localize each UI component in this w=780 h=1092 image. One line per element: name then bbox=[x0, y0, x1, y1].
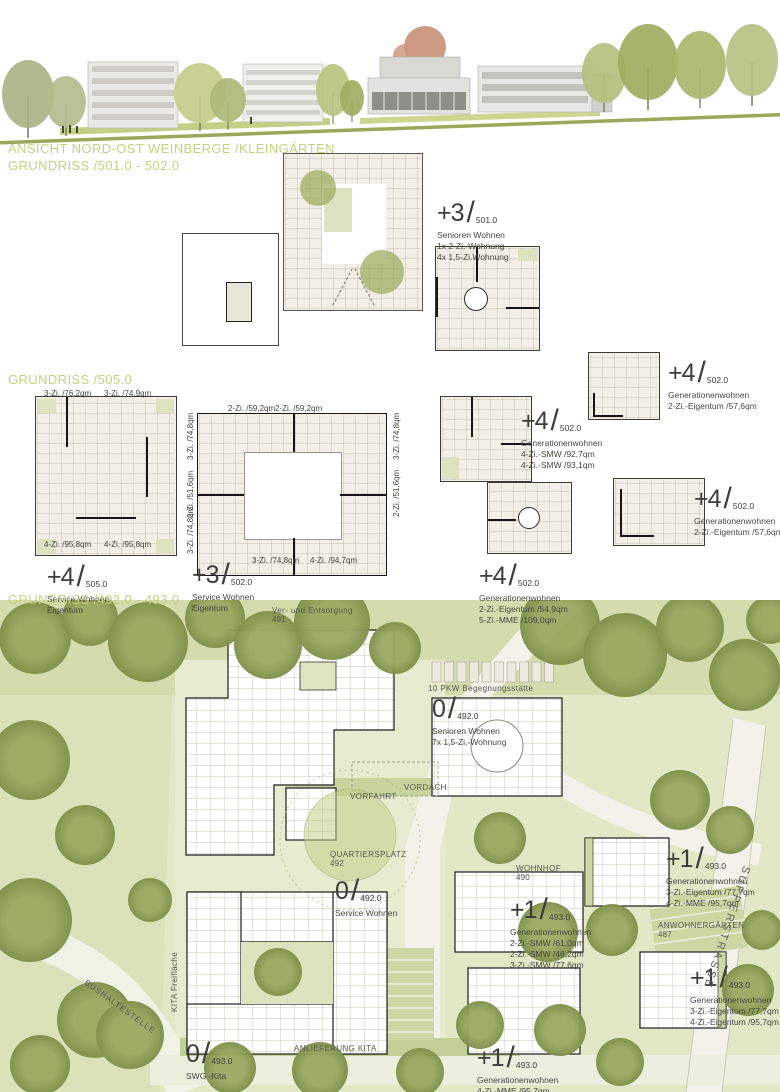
plan-label-lines: Generationenwohnen4-Zi.-SMW /92,7qm4-Zi.… bbox=[521, 438, 602, 471]
plan-label-line: Generationenwohnen bbox=[694, 516, 780, 527]
plan-label-line: 3-Zi.-Eigentum /77,7qm bbox=[690, 1006, 779, 1017]
plan-label-line: 5-Zi.-MME /109,0qm bbox=[479, 615, 568, 626]
plan-label-line: 4-Zi.-Eigentum /95,7qm bbox=[690, 1017, 779, 1028]
unit-label: 3-Zi. /74,8qm bbox=[392, 413, 401, 460]
plan-label-line: 2-Zi.-Eigentum /54,9qm bbox=[479, 604, 568, 615]
ref: 502.0 bbox=[518, 579, 539, 590]
ref: 501.0 bbox=[476, 216, 497, 227]
slash: / bbox=[720, 963, 728, 993]
wall bbox=[76, 517, 136, 519]
unit-label: 2-Zi. /59,2qm bbox=[275, 404, 322, 413]
plan-label-line: 2-Zi.-SMW /46,2qm bbox=[510, 949, 591, 960]
level: +3 bbox=[437, 201, 464, 226]
balcony-accent bbox=[518, 249, 538, 261]
plan-label-line: 4-Zi.-SMW /92,7qm bbox=[521, 449, 602, 460]
plan-label-lines: SWG -Kita bbox=[186, 1071, 233, 1082]
plan-label-line: SWG -Kita bbox=[186, 1071, 233, 1082]
plan-label-head: +1/493.0 bbox=[510, 893, 591, 923]
plan-label-head: +3/501.0 bbox=[437, 196, 509, 226]
ref: 502.0 bbox=[560, 424, 581, 435]
floor-plan-502-right-lower bbox=[487, 482, 572, 554]
plan-label-505: +4/505.0 Service WohnenEigentum bbox=[47, 560, 109, 616]
plan-label-502-main: +3/502.0 Service WohnenEigentum bbox=[192, 558, 254, 614]
level: +1 bbox=[666, 847, 693, 872]
plan-label-line: 4x 1,5-Zi.Wohnung bbox=[437, 252, 509, 263]
plan-room-texture bbox=[37, 398, 175, 554]
slash: / bbox=[448, 694, 456, 724]
courtyard-tree bbox=[360, 250, 404, 294]
slash: / bbox=[467, 198, 475, 228]
plan-label-lines: Generationenwohnen2-Zi.-Eigentum /57,6qm bbox=[668, 390, 757, 412]
site-label-number: 490 bbox=[516, 873, 561, 882]
level: 0 bbox=[186, 1042, 199, 1067]
plan-label-493-mid: +1/493.0 Generationenwohnen2-Zi.-SMW /61… bbox=[510, 893, 591, 971]
plan-label-line: 1x 2-Zi.-Wohnung bbox=[437, 241, 509, 252]
floor-plan-502-main bbox=[197, 413, 387, 576]
elevation-building-b bbox=[243, 64, 323, 122]
plan-label-line: Senioren Wohnen bbox=[437, 230, 509, 241]
wall bbox=[620, 535, 654, 537]
level: +4 bbox=[668, 361, 695, 386]
elevation-drawing bbox=[0, 0, 780, 150]
wall bbox=[506, 307, 539, 309]
ref: 493.0 bbox=[729, 981, 750, 992]
level: 0 bbox=[335, 879, 348, 904]
plan-label-line: Eigentum bbox=[192, 603, 254, 614]
unit-label: 3-Zi. /74,9qm bbox=[104, 389, 151, 398]
balcony-accent bbox=[38, 399, 56, 413]
slash: / bbox=[540, 895, 548, 925]
floor-plan-502-right-upper bbox=[440, 396, 532, 482]
plan-label-line: 3-Zi.-SMW /77,6qm bbox=[510, 960, 591, 971]
plan-label-line: Generationenwohnen bbox=[477, 1075, 558, 1086]
plan-label-lines: Service Wohnen bbox=[335, 908, 397, 919]
site-label-vordach: VORDACH bbox=[404, 783, 447, 792]
wall bbox=[471, 397, 473, 437]
site-label-text: Ver- und Entsorgung bbox=[272, 606, 353, 615]
level: +4 bbox=[694, 487, 721, 512]
plan-label-head: 0/493.0 bbox=[186, 1037, 233, 1067]
wall bbox=[146, 437, 148, 497]
plan-label-lines: Senioren Wohnen7x 1,5-Zi.-Wohnung bbox=[432, 726, 507, 748]
plan-label-line: 2-Zi.-Eigentum /57,6qm bbox=[694, 527, 780, 538]
plan-label-head: 0/492.0 bbox=[432, 692, 507, 722]
plan-label-head: +1/493.0 bbox=[477, 1041, 558, 1071]
slash: / bbox=[351, 876, 359, 906]
ref: 492.0 bbox=[360, 894, 381, 905]
balcony-accent bbox=[156, 399, 174, 413]
site-label-number: 492 bbox=[330, 859, 406, 868]
ref: 502.0 bbox=[707, 376, 728, 387]
slash: / bbox=[202, 1039, 210, 1069]
plan-label-line: 2-Zi.-Eigentum /57,6qm bbox=[668, 401, 757, 412]
slash: / bbox=[509, 561, 517, 591]
plan-label-502-mid: +4/502.0 Generationenwohnen4-Zi.-SMW /92… bbox=[521, 404, 602, 471]
ref: 493.0 bbox=[549, 913, 570, 924]
site-label-text: QUARTIERSPLATZ bbox=[330, 850, 406, 859]
slash: / bbox=[698, 358, 706, 388]
wall bbox=[198, 494, 244, 496]
plan-label-line: Generationenwohnen bbox=[521, 438, 602, 449]
unit-label: 3-Zi. /74,8qm bbox=[186, 413, 195, 460]
plan-label-lines: Generationenwohnen2-Zi.-Eigentum /57,6qm bbox=[694, 516, 780, 538]
slash: / bbox=[724, 484, 732, 514]
wall bbox=[340, 494, 386, 496]
slash: / bbox=[77, 562, 85, 592]
plan-label-line: Generationenwohnen bbox=[690, 995, 779, 1006]
plan-label-head: +4/502.0 bbox=[479, 559, 568, 589]
building-generationen-east-upper bbox=[585, 838, 669, 906]
courtyard-tree bbox=[254, 948, 302, 996]
unit-label: 3-Zi. /74,8qm bbox=[252, 556, 299, 565]
ref: 502.0 bbox=[231, 578, 252, 589]
balcony-accent bbox=[443, 457, 459, 479]
plan-label-line: Senioren Wohnen bbox=[432, 726, 507, 737]
plan-label-492-service: 0/492.0 Service Wohnen bbox=[335, 874, 397, 919]
ref: 505.0 bbox=[86, 580, 107, 591]
plan-label-493-kita: 0/493.0 SWG -Kita bbox=[186, 1037, 233, 1082]
unit-label: 4-Zi. /95,8qm bbox=[44, 540, 91, 549]
unit-label: 2-Zi. /59,2qm bbox=[228, 404, 275, 413]
unit-label: 4-Zi. /94,7qm bbox=[310, 556, 357, 565]
floor-plan-courtyard-501 bbox=[283, 153, 423, 311]
ref: 493.0 bbox=[705, 862, 726, 873]
elevation-building-a bbox=[88, 62, 178, 128]
unit-label: 2-Zi. /51,6qm bbox=[392, 470, 401, 517]
plan-label-head: +4/505.0 bbox=[47, 560, 109, 590]
ref: 493.0 bbox=[516, 1061, 537, 1072]
unit-label: 3-Zi. /74,8qm bbox=[186, 507, 195, 554]
stair-circle bbox=[518, 507, 540, 529]
floor-plan-502-far-right bbox=[613, 478, 705, 546]
plan-label-head: 0/492.0 bbox=[335, 874, 397, 904]
level: 0 bbox=[432, 697, 445, 722]
plan-label-head: +4/502.0 bbox=[521, 404, 602, 434]
plan-label-line: 4-Zi.-MME /95,7qm bbox=[477, 1086, 558, 1092]
wall bbox=[488, 519, 516, 521]
level: +4 bbox=[479, 564, 506, 589]
site-label-text: WOHNHOF bbox=[516, 864, 561, 873]
plan-label-501: +3/501.0 Senioren Wohnen1x 2-Zi.-Wohnung… bbox=[437, 196, 509, 263]
plan-label-lines: Generationenwohnen2-Zi.-SMW /61,0qm2-Zi.… bbox=[510, 927, 591, 971]
balcony-accent bbox=[156, 539, 174, 553]
courtyard-tree bbox=[300, 170, 336, 206]
title-grundriss-501-502: GRUNDRISS /501.0 - 502.0 bbox=[8, 158, 179, 173]
plan-label-line: 2-Zi.-SMW /61,0qm bbox=[510, 938, 591, 949]
plan-label-line: 4-Zi.-SMW /93,1qm bbox=[521, 460, 602, 471]
title-grundriss-492-493: GRUNDRISS /492.0 - 493.0 bbox=[8, 592, 179, 607]
site-label-number: 491 bbox=[272, 615, 353, 624]
slash: / bbox=[696, 844, 704, 874]
floor-plan-hall bbox=[182, 233, 279, 346]
plan-label-line: Generationenwohnen bbox=[510, 927, 591, 938]
site-label-pkw: 10 PKW Begegnungsstätte bbox=[428, 684, 533, 693]
floor-plan-505 bbox=[35, 396, 177, 556]
plan-label-head: +3/502.0 bbox=[192, 558, 254, 588]
slash: / bbox=[551, 406, 559, 436]
plan-label-492-senioren: 0/492.0 Senioren Wohnen7x 1,5-Zi.-Wohnun… bbox=[432, 692, 507, 748]
ref: 502.0 bbox=[733, 502, 754, 513]
slash: / bbox=[222, 560, 230, 590]
hall-core bbox=[226, 282, 252, 322]
wall bbox=[620, 489, 622, 537]
level: +4 bbox=[47, 565, 74, 590]
plan-label-line: Generationenwohnen bbox=[668, 390, 757, 401]
plan-label-line: Service Wohnen bbox=[335, 908, 397, 919]
plan-label-lines: Service WohnenEigentum bbox=[192, 592, 254, 614]
site-label-vorfahrt: VORFAHRT bbox=[350, 792, 397, 801]
unit-label: 4-Zi. /95,8qm bbox=[104, 540, 151, 549]
slash: / bbox=[507, 1043, 515, 1073]
level: +1 bbox=[477, 1046, 504, 1071]
elevation-building-c bbox=[368, 57, 470, 114]
inner-courtyard bbox=[244, 452, 342, 540]
stair-circle bbox=[464, 287, 488, 311]
plan-label-502-bottom: +4/502.0 Generationenwohnen2-Zi.-Eigentu… bbox=[479, 559, 568, 626]
plan-label-493-bottom: +1/493.0 Generationenwohnen4-Zi.-MME /95… bbox=[477, 1041, 558, 1092]
plan-label-line: Service Wohnen bbox=[192, 592, 254, 603]
plan-label-line: Generationenwohnen bbox=[479, 593, 568, 604]
wall bbox=[436, 277, 438, 317]
wall bbox=[293, 414, 295, 452]
plan-label-lines: Senioren Wohnen1x 2-Zi.-Wohnung4x 1,5-Zi… bbox=[437, 230, 509, 263]
plan-label-head: +4/502.0 bbox=[694, 482, 780, 512]
plan-label-lines: Generationenwohnen4-Zi.-MME /95,7qm3-Zi.… bbox=[477, 1075, 558, 1092]
site-label-anlieferung-kita: ANLIEFERUNG KITA bbox=[294, 1044, 377, 1053]
site-label-quartiersplatz: QUARTIERSPLATZ 492 bbox=[330, 850, 406, 868]
site-plan-drawing bbox=[0, 600, 780, 1092]
ref: 492.0 bbox=[457, 712, 478, 723]
presentation-board: ANSICHT NORD-OST WEINBERGE /KLEINGÄRTEN … bbox=[0, 0, 780, 1092]
plan-label-head: +4/502.0 bbox=[668, 356, 757, 386]
unit-label: 3-Zi. /76,2qm bbox=[44, 389, 91, 398]
plan-label-493-east-lower: +1/493.0 Generationenwohnen3-Zi.-Eigentu… bbox=[690, 961, 779, 1028]
plan-label-lines: Generationenwohnen2-Zi.-Eigentum /54,9qm… bbox=[479, 593, 568, 626]
plan-label-line: 7x 1,5-Zi.-Wohnung bbox=[432, 737, 507, 748]
level: +4 bbox=[521, 409, 548, 434]
ref: 493.0 bbox=[211, 1057, 232, 1068]
title-grundriss-505: GRUNDRISS /505.0 bbox=[8, 372, 132, 387]
plan-label-lines: Generationenwohnen3-Zi.-Eigentum /77,7qm… bbox=[690, 995, 779, 1028]
plan-label-502-fr: +4/502.0 Generationenwohnen2-Zi.-Eigentu… bbox=[694, 482, 780, 538]
site-label-ver-und-entsorgung: Ver- und Entsorgung 491 bbox=[272, 606, 353, 624]
building-court-green bbox=[300, 662, 336, 690]
site-label-wohnhof: WOHNHOF 490 bbox=[516, 864, 561, 882]
wall bbox=[66, 397, 68, 447]
plan-label-502-tr: +4/502.0 Generationenwohnen2-Zi.-Eigentu… bbox=[668, 356, 757, 412]
level: +3 bbox=[192, 563, 219, 588]
site-label-kita-freiflaeche: KITA Freifläche bbox=[170, 952, 179, 1012]
level: +1 bbox=[510, 898, 537, 923]
